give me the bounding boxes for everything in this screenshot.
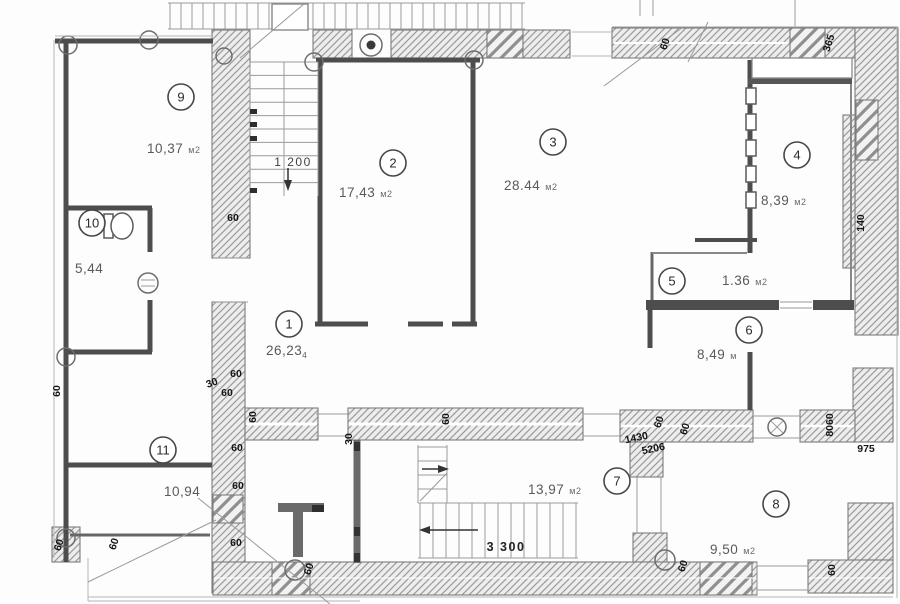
dim-label: 30 xyxy=(343,433,355,445)
svg-text:13,97м2: 13,97м2 xyxy=(528,482,582,497)
svg-text:17,43м2: 17,43м2 xyxy=(339,185,393,200)
svg-text:8,49м: 8,49м xyxy=(697,347,737,362)
room-label-5: 51.36м2 xyxy=(659,268,767,294)
svg-text:4: 4 xyxy=(793,148,800,163)
svg-text:1: 1 xyxy=(285,317,292,332)
svg-text:11: 11 xyxy=(156,443,170,458)
dim-label: 60 xyxy=(826,564,838,576)
room-label-3: 328.44м2 xyxy=(504,129,566,193)
wall-pier xyxy=(278,503,324,557)
svg-text:10,37м2: 10,37м2 xyxy=(147,141,201,156)
dim-label: 60 xyxy=(232,480,244,492)
dim-label: 60 xyxy=(221,387,233,399)
dim-label: 975 xyxy=(857,443,875,455)
room-label-7: 713,97м2 xyxy=(528,468,630,497)
room-label-8: 89,50м2 xyxy=(710,491,789,557)
scale-labels: 1 2003 300 xyxy=(274,155,525,554)
toilet-fixture xyxy=(104,213,133,239)
svg-text:9: 9 xyxy=(177,90,184,105)
stair-upper xyxy=(250,62,318,196)
room-label-4: 48,39м2 xyxy=(761,142,810,208)
svg-text:26,234: 26,234 xyxy=(266,343,307,360)
dim-label: 60 xyxy=(107,537,122,552)
svg-text:8,39м2: 8,39м2 xyxy=(761,193,806,208)
scale-label: 3 300 xyxy=(487,540,526,554)
svg-text:2: 2 xyxy=(389,156,396,171)
svg-text:5,44: 5,44 xyxy=(75,261,103,276)
dim-label: 60 xyxy=(230,537,242,549)
dim-label: 60 xyxy=(51,385,63,397)
dim-label: 8060 xyxy=(824,413,836,437)
plumbing-symbol xyxy=(138,273,158,293)
floor-plan-drawing: 910,37м2105,44217,43м2328.44м248,39м251.… xyxy=(0,0,900,604)
dim-label: 60 xyxy=(231,442,243,454)
railing-upper xyxy=(168,0,898,30)
dim-label: 60 xyxy=(230,368,242,380)
dim-label: 60 xyxy=(247,411,259,423)
dim-label: 140 xyxy=(855,214,867,232)
svg-text:28.44м2: 28.44м2 xyxy=(504,178,558,193)
floor-plan: 910,37м2105,44217,43м2328.44м248,39м251.… xyxy=(0,0,900,604)
svg-text:6: 6 xyxy=(745,323,752,338)
svg-text:8: 8 xyxy=(772,497,779,512)
svg-text:1.36м2: 1.36м2 xyxy=(722,273,767,288)
svg-text:10,94: 10,94 xyxy=(164,484,200,499)
svg-text:10: 10 xyxy=(85,216,99,231)
room-label-10: 105,44 xyxy=(75,210,105,276)
fan-symbol xyxy=(768,418,786,436)
dim-label: 60 xyxy=(440,413,452,425)
scale-label: 1 200 xyxy=(274,155,312,169)
axis-symbol xyxy=(360,34,382,56)
room-label-9: 910,37м2 xyxy=(147,84,201,156)
dim-label: 60 xyxy=(227,212,239,224)
room-label-11: 1110,94 xyxy=(150,437,200,499)
svg-text:7: 7 xyxy=(613,474,620,489)
room-label-2: 217,43м2 xyxy=(339,150,406,200)
svg-text:3: 3 xyxy=(549,135,556,150)
room-label-1: 126,234 xyxy=(266,311,307,360)
room-labels: 910,37м2105,44217,43м2328.44м248,39м251.… xyxy=(75,84,810,557)
svg-text:9,50м2: 9,50м2 xyxy=(710,542,755,557)
svg-text:5: 5 xyxy=(668,274,675,289)
